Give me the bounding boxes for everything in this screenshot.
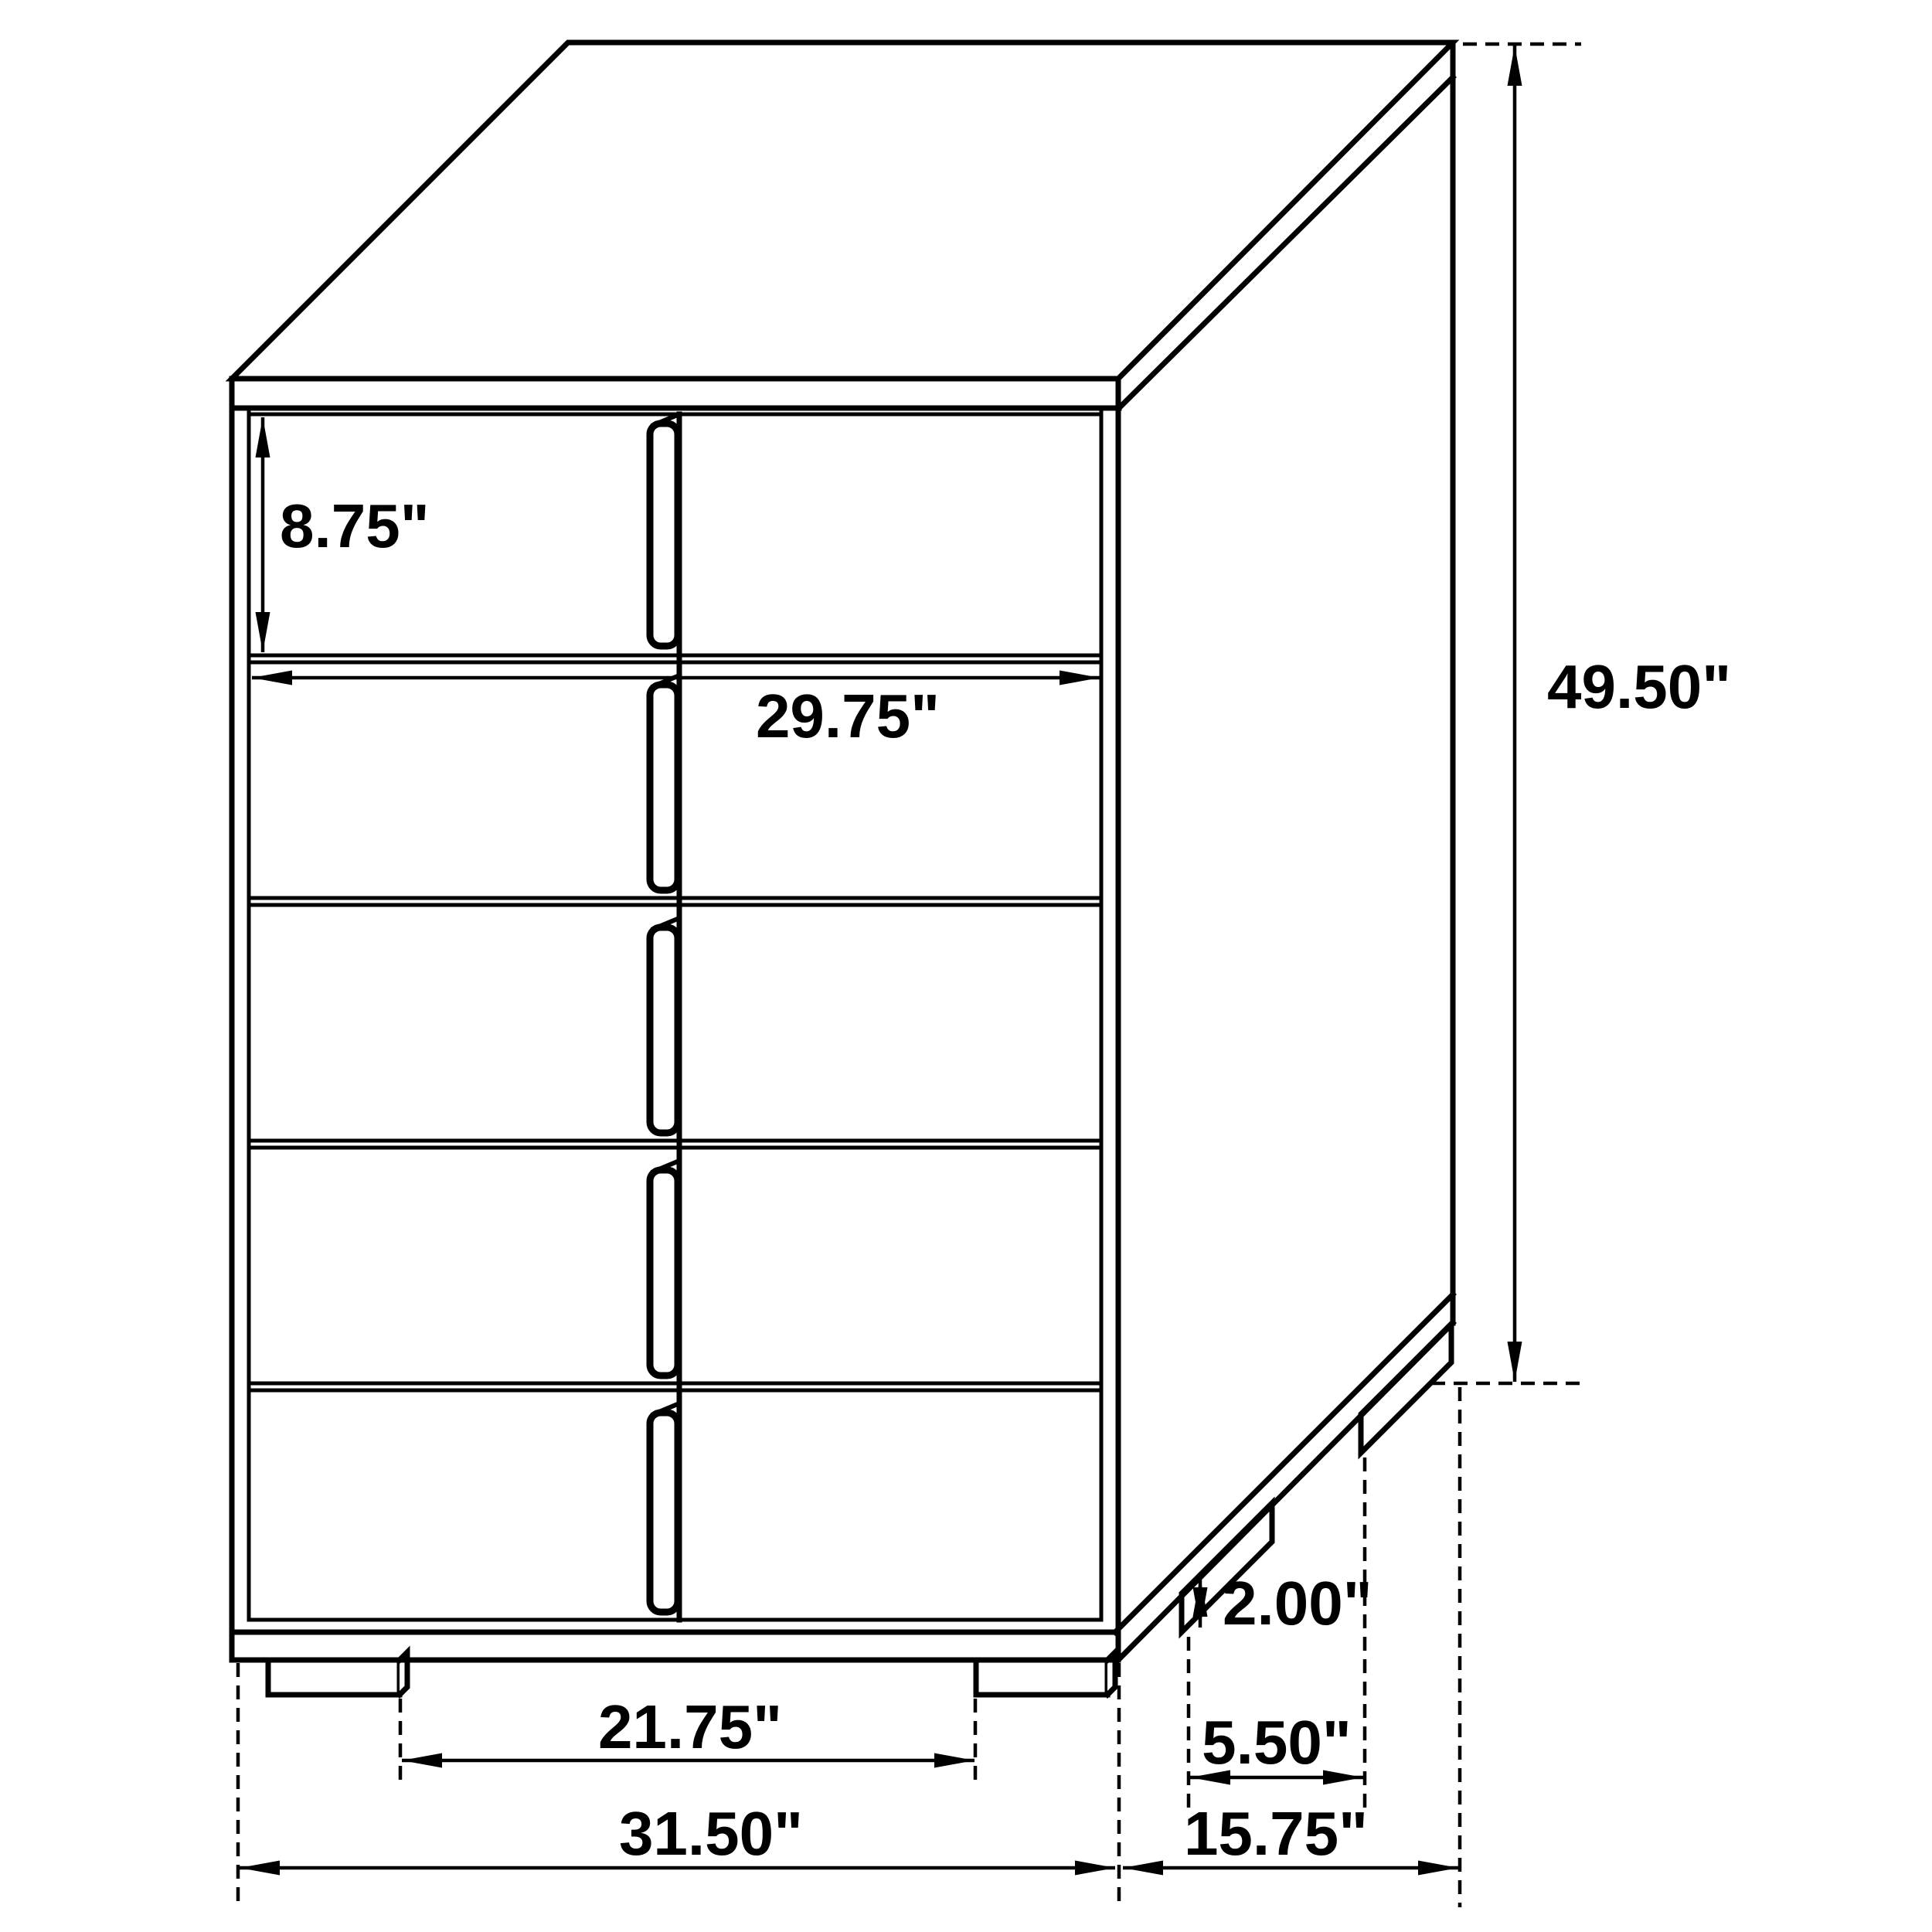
diagram-canvas: 8.75" 29.75" 49.50" 2.00" 5.50" 21.75" 3… bbox=[0, 0, 1932, 1932]
drawer-handle-5 bbox=[650, 1413, 678, 1612]
chest-silhouette bbox=[232, 43, 1453, 1660]
dim-overall-depth: 15.75" bbox=[1123, 1799, 1458, 1876]
dim-overall-height: 49.50" bbox=[1508, 46, 1732, 1382]
dim-foot-inset-depth: 5.50" bbox=[1190, 1708, 1363, 1785]
dimension-label-drawer-width: 29.75" bbox=[756, 682, 940, 750]
dresser-dimension-diagram: 8.75" 29.75" 49.50" 2.00" 5.50" 21.75" 3… bbox=[0, 0, 1932, 1932]
dim-overall-width: 31.50" bbox=[240, 1799, 1115, 1876]
drawer-handle-2 bbox=[650, 685, 678, 890]
drawer-handle-4 bbox=[650, 1170, 678, 1376]
dimension-label-overall-depth: 15.75" bbox=[1184, 1799, 1368, 1868]
dim-foot-spacing-width: 21.75" bbox=[402, 1692, 975, 1768]
drawer-handle-3 bbox=[650, 927, 678, 1133]
drawer-handle-1 bbox=[650, 423, 678, 646]
dimension-label-overall-height: 49.50" bbox=[1547, 652, 1731, 721]
dimension-label-foot-inset-depth: 5.50" bbox=[1202, 1708, 1352, 1777]
dimension-label-overall-width: 31.50" bbox=[619, 1799, 803, 1868]
dimension-label-foot-spacing-width: 21.75" bbox=[598, 1692, 782, 1761]
dimension-label-drawer-height: 8.75" bbox=[280, 492, 430, 560]
dimension-label-foot-height: 2.00" bbox=[1223, 1569, 1372, 1638]
drawer-handles bbox=[650, 414, 679, 1620]
